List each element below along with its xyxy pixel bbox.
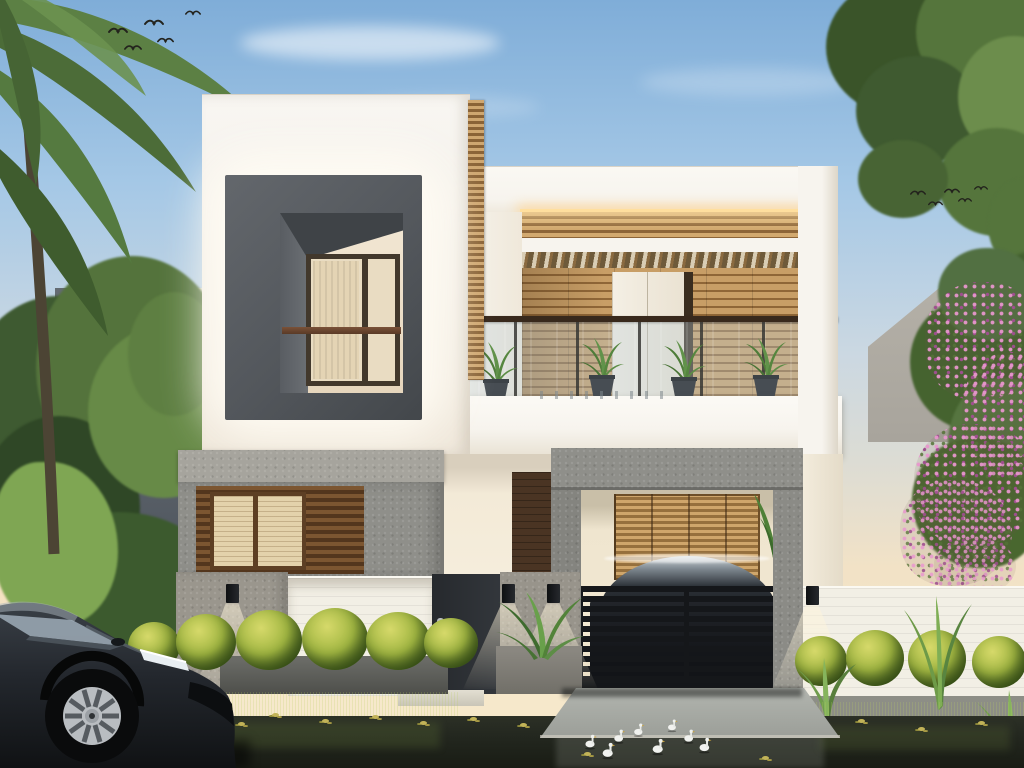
scene-modern-house-render: [0, 0, 1024, 768]
flying-bird: [108, 22, 128, 32]
flying-bird: [958, 194, 972, 201]
flying-bird: [910, 186, 926, 194]
flying-bird: [124, 40, 142, 49]
flying-bird: [144, 14, 164, 24]
flying-bird: [944, 184, 960, 192]
flying-bird: [185, 6, 201, 14]
birds: [0, 0, 1024, 768]
flying-bird: [974, 182, 988, 189]
flying-bird: [157, 33, 174, 42]
flying-bird: [928, 197, 943, 205]
